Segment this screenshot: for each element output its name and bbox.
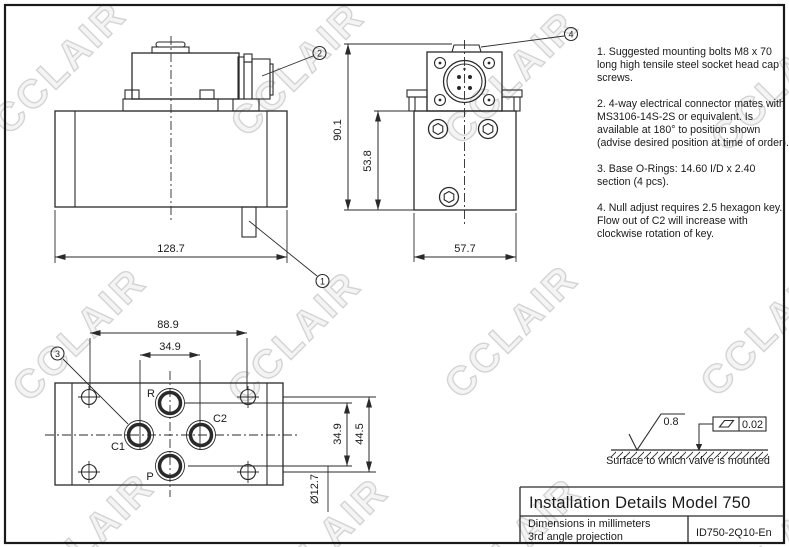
balloon-3-label: 3 <box>55 349 60 359</box>
units-note: Dimensions in millimeters <box>528 518 650 531</box>
notes-list: 1. Suggested mounting bolts M8 x 70 long… <box>597 46 789 254</box>
document-number: ID750-2Q10-En <box>696 527 772 539</box>
note-item-1: 1. Suggested mounting bolts M8 x 70 long… <box>597 46 789 85</box>
dim-side-width: 128.7 <box>157 243 185 255</box>
dim-port-diameter: Ø12.7 <box>309 474 321 504</box>
note-item-4: 4. Null adjust requires 2.5 hexagon key.… <box>597 202 789 241</box>
drawing-sheet: CCLAIR CCLAIR CCLAIR CCLAIR CCLAIR CCLAI… <box>0 0 789 547</box>
port-label-p: P <box>146 471 153 483</box>
drawing-title: Installation Details Model 750 <box>529 494 751 513</box>
balloon-1-label: 1 <box>320 277 325 287</box>
dim-front-body-height: 53.8 <box>362 150 374 171</box>
title-block-info: Dimensions in millimeters 3rd angle proj… <box>528 518 650 543</box>
projection-note: 3rd angle projection <box>528 531 650 544</box>
port-label-r: R <box>147 388 155 400</box>
roughness-value: 0.8 <box>663 416 678 428</box>
dim-port-span-h: 34.9 <box>159 341 180 353</box>
dim-bolt-span-v: 44.5 <box>354 423 366 444</box>
balloon-4-label: 4 <box>568 30 573 40</box>
hex-socket-screws <box>429 120 498 207</box>
surface-caption: Surface to which valve is mounted <box>606 455 770 467</box>
port-label-c2: C2 <box>213 413 227 425</box>
port-label-c1: C1 <box>111 441 125 453</box>
flatness-callout: 0.02 <box>696 417 766 451</box>
dim-front-total-height: 90.1 <box>332 119 344 140</box>
dim-port-span-v: 34.9 <box>332 423 344 444</box>
note-item-3: 3. Base O-Rings: 14.60 I/D x 2.40 sectio… <box>597 163 789 189</box>
dim-front-width: 57.7 <box>454 243 475 255</box>
balloon-2-label: 2 <box>317 49 322 59</box>
front-view: 90.1 53.8 57.7 4 <box>332 28 578 263</box>
flatness-value: 0.02 <box>742 419 763 431</box>
side-view: 128.7 1 2 <box>55 36 329 288</box>
flatness-symbol-icon <box>720 421 734 428</box>
note-item-2: 2. 4-way electrical connector mates with… <box>597 98 789 150</box>
surface-finish-note: 0.8 0.02 Surface to which valve is mount… <box>606 414 770 467</box>
dim-bolt-span-h: 88.9 <box>157 319 178 331</box>
bottom-view: R C1 C2 P 88.9 34.9 34.9 <box>45 319 376 512</box>
null-adjust-protrusion <box>242 207 256 237</box>
